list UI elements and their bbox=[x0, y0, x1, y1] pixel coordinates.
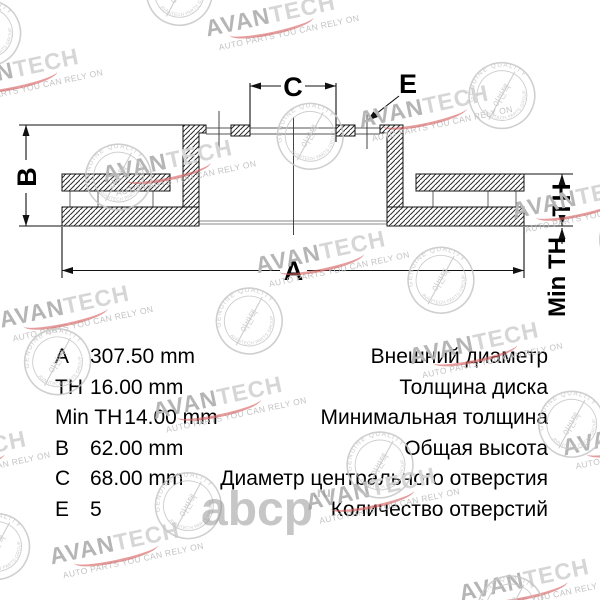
param-desc: Внешний диаметр bbox=[371, 345, 548, 369]
param-value: 68.00 mm bbox=[90, 467, 183, 491]
param-desc: Количество отверстий bbox=[331, 498, 548, 522]
red-swoosh bbox=[481, 573, 569, 600]
stamp-center-text: 아반텍 bbox=[500, 596, 521, 600]
stamp-bottom-text: AVANTECH PARTS GROUP bbox=[551, 417, 600, 457]
avantech-watermark: AVANTECH AUTO PARTS YOU CAN RELY ON bbox=[457, 541, 600, 600]
flange-ring-left bbox=[231, 125, 250, 136]
param-value: 14.00 mm bbox=[124, 406, 217, 430]
quality-stamp: GENUINE QUALITY AVANTECH PARTS GROUP 아반텍 bbox=[463, 561, 559, 600]
flange-ring-right bbox=[336, 125, 355, 136]
table-row: B 62.00 mm Общая высота bbox=[55, 434, 548, 465]
param-label: Min TH bbox=[55, 406, 122, 430]
param-value: 62.00 mm bbox=[90, 437, 183, 461]
param-value: 5 bbox=[90, 498, 102, 522]
label-thickness: TH bbox=[548, 183, 576, 216]
table-row: E 5 Количество отверстий bbox=[55, 495, 548, 526]
slogan-text: AUTO PARTS YOU CAN RELY ON bbox=[575, 424, 600, 471]
product-image: B A C E TH Min TH A 307.50 mm Внешний ди… bbox=[0, 0, 600, 600]
red-swoosh bbox=[72, 536, 160, 571]
table-row: A 307.50 mm Внешний диаметр bbox=[55, 342, 548, 373]
label-outer-diameter: A bbox=[284, 256, 304, 286]
svg-text:AVANTECH PARTS GROUP: AVANTECH PARTS GROUP bbox=[0, 539, 30, 579]
quality-stamp: GENUINE QUALITY AVANTECH PARTS GROUP 아반텍 bbox=[0, 498, 45, 594]
plate-top-right bbox=[416, 174, 524, 191]
param-label: B bbox=[55, 437, 88, 461]
table-row: C 68.00 mm Диаметр центрального отверсти… bbox=[55, 464, 548, 495]
param-label: A bbox=[55, 345, 88, 369]
spec-table: A 307.50 mm Внешний диаметр TH 16.00 mm … bbox=[55, 342, 548, 525]
brake-disc-diagram: B A C E TH Min TH bbox=[0, 0, 600, 340]
stamp-top-text: GENUINE QUALITY bbox=[466, 564, 537, 600]
label-center-hole: C bbox=[283, 72, 303, 102]
avantech-watermark: AVANTECH AUTO PARTS YOU CAN RELY ON bbox=[560, 395, 600, 493]
avantech-watermark: AVANTECH AUTO PARTS YOU CAN RELY ON bbox=[200, 596, 398, 600]
param-label: TH bbox=[55, 376, 88, 400]
param-value: 16.00 mm bbox=[90, 376, 183, 400]
stamp-bottom-text: AVANTECH PARTS GROUP bbox=[0, 539, 30, 579]
param-value: 307.50 mm bbox=[90, 345, 195, 369]
avantech-wordmark: AVANTECH bbox=[560, 395, 600, 461]
red-swoosh bbox=[0, 445, 6, 480]
svg-text:GENUINE QUALITY: GENUINE QUALITY bbox=[466, 564, 537, 600]
stamp-top-text: GENUINE QUALITY bbox=[0, 501, 23, 555]
plate-top-left bbox=[62, 174, 170, 191]
stamp-center-text: 아반텍 bbox=[561, 411, 582, 437]
avantech-wordmark: AVANTECH bbox=[457, 541, 600, 600]
plate-bottom-right bbox=[387, 207, 524, 226]
table-row: TH 16.00 mm Толщина диска bbox=[55, 373, 548, 404]
table-row: Min TH 14.00 mm Минимальная толщина bbox=[55, 403, 548, 434]
param-desc: Диаметр центрального отверстия bbox=[220, 467, 548, 491]
svg-text:GENUINE QUALITY: GENUINE QUALITY bbox=[0, 501, 23, 555]
slogan-text: AUTO PARTS YOU CAN RELY ON bbox=[472, 569, 600, 600]
stamp-center-text: 아반텍 bbox=[0, 533, 7, 559]
label-holes: E bbox=[399, 69, 417, 99]
param-label: E bbox=[55, 498, 88, 522]
avantech-wordmark: AVANTECH bbox=[200, 596, 391, 600]
slogan-text: AUTO PARTS YOU CAN RELY ON bbox=[62, 533, 241, 580]
red-swoosh bbox=[584, 427, 600, 462]
param-desc: Толщина диска bbox=[399, 376, 548, 400]
param-label: C bbox=[55, 467, 88, 491]
svg-text:AVANTECH PARTS GROUP: AVANTECH PARTS GROUP bbox=[551, 417, 600, 457]
label-min-thickness: Min TH bbox=[544, 237, 571, 317]
plate-bottom-left bbox=[62, 207, 199, 226]
param-desc: Минимальная толщина bbox=[321, 406, 548, 430]
param-desc: Общая высота bbox=[404, 437, 548, 461]
label-overall-height: B bbox=[12, 167, 42, 187]
